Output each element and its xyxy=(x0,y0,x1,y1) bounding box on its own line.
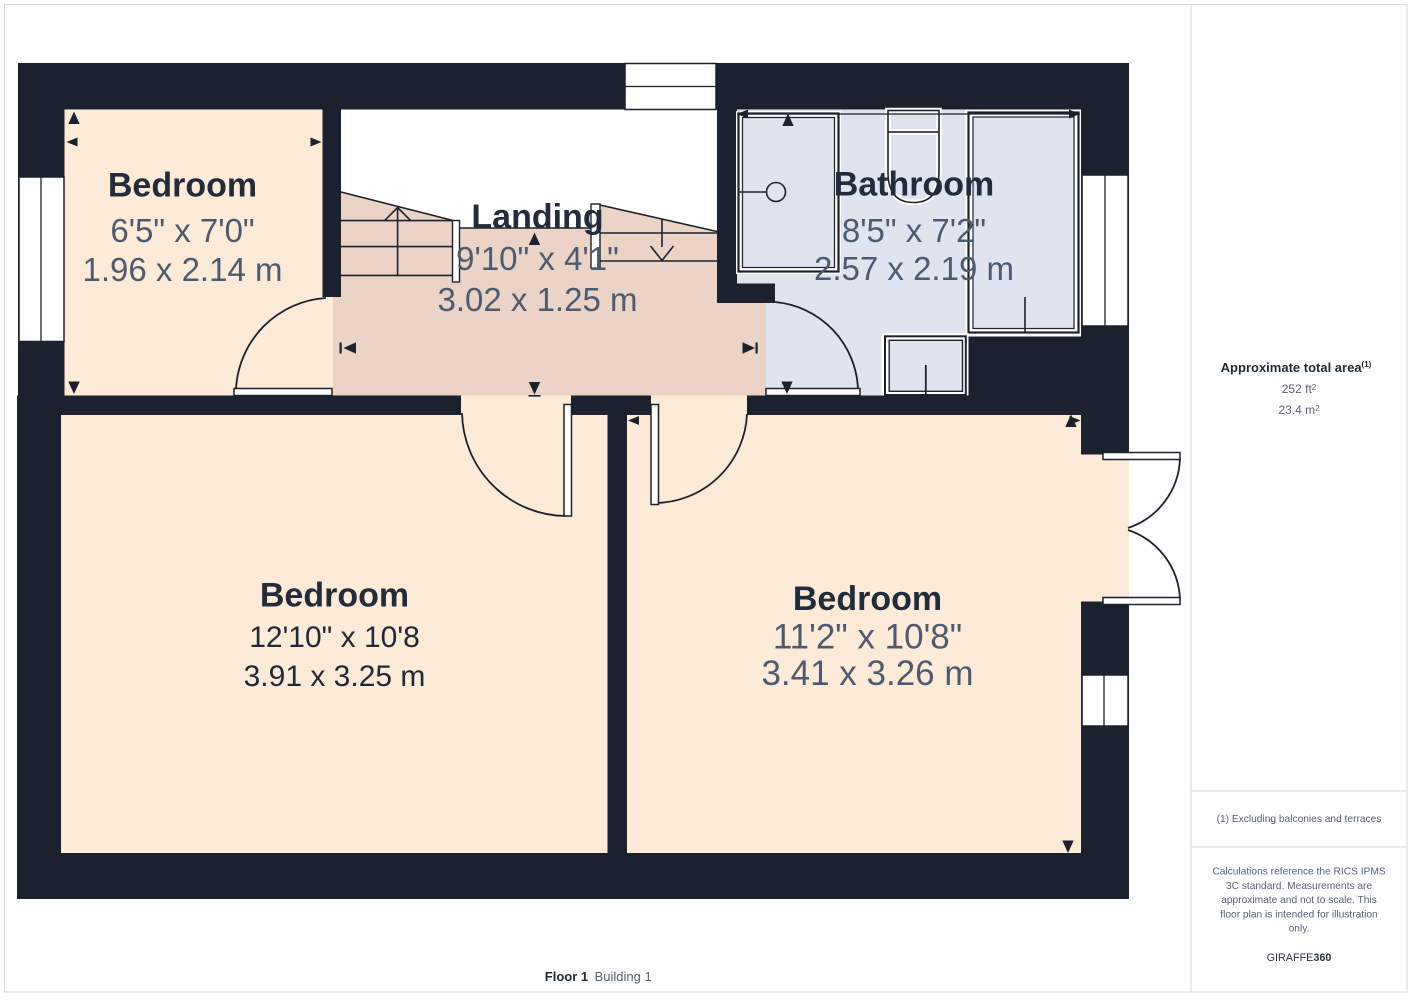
svg-text:Building 1: Building 1 xyxy=(595,969,652,984)
svg-text:3.91 x 3.25 m: 3.91 x 3.25 m xyxy=(244,660,426,693)
svg-text:6'5" x 7'0": 6'5" x 7'0" xyxy=(110,212,254,249)
svg-text:11'2" x 10'8": 11'2" x 10'8" xyxy=(773,618,962,657)
svg-text:Landing: Landing xyxy=(471,198,603,236)
svg-text:approximate and not to scale.: approximate and not to scale. This xyxy=(1221,895,1377,906)
svg-text:floor plan is intended for ill: floor plan is intended for illustration xyxy=(1220,909,1377,920)
svg-text:9'10" x 4'1": 9'10" x 4'1" xyxy=(456,240,619,277)
svg-text:8'5" x 7'2": 8'5" x 7'2" xyxy=(842,212,986,249)
svg-text:1.96 x 2.14 m: 1.96 x 2.14 m xyxy=(83,251,283,288)
svg-text:Floor 1: Floor 1 xyxy=(545,969,588,984)
svg-text:only.: only. xyxy=(1289,924,1310,935)
svg-text:Approximate total area(1): Approximate total area(1) xyxy=(1221,360,1372,375)
svg-text:2.57 x 2.19 m: 2.57 x 2.19 m xyxy=(814,250,1014,287)
svg-text:GIRAFFE360: GIRAFFE360 xyxy=(1267,952,1332,964)
svg-text:(1) Excluding balconies and te: (1) Excluding balconies and terraces xyxy=(1217,814,1382,825)
svg-text:12'10" x 10'8: 12'10" x 10'8 xyxy=(249,621,420,654)
svg-text:Bedroom: Bedroom xyxy=(260,577,409,615)
svg-text:3.41 x 3.26 m: 3.41 x 3.26 m xyxy=(761,654,973,693)
svg-text:Bathroom: Bathroom xyxy=(834,166,995,204)
svg-text:Bedroom: Bedroom xyxy=(108,167,257,205)
svg-text:252 ft2: 252 ft2 xyxy=(1282,382,1317,396)
svg-text:3.02 x 1.25 m: 3.02 x 1.25 m xyxy=(438,281,638,318)
svg-text:Bedroom: Bedroom xyxy=(793,580,942,618)
svg-text:Calculations reference the RIC: Calculations reference the RICS IPMS xyxy=(1212,867,1385,878)
svg-text:23.4 m2: 23.4 m2 xyxy=(1278,403,1320,417)
svg-text:3C standard. Measurements are: 3C standard. Measurements are xyxy=(1226,881,1372,892)
